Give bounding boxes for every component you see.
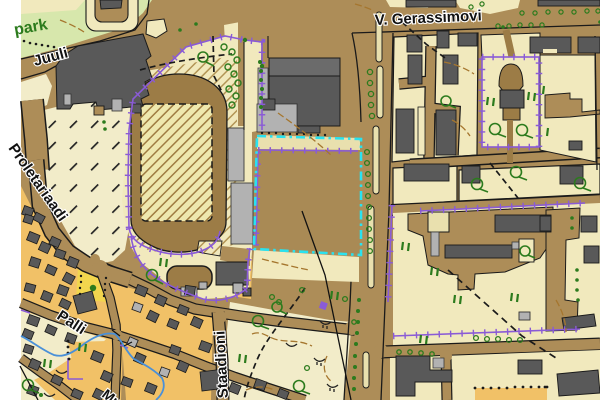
svg-text:Staadioni: Staadioni xyxy=(211,330,232,398)
